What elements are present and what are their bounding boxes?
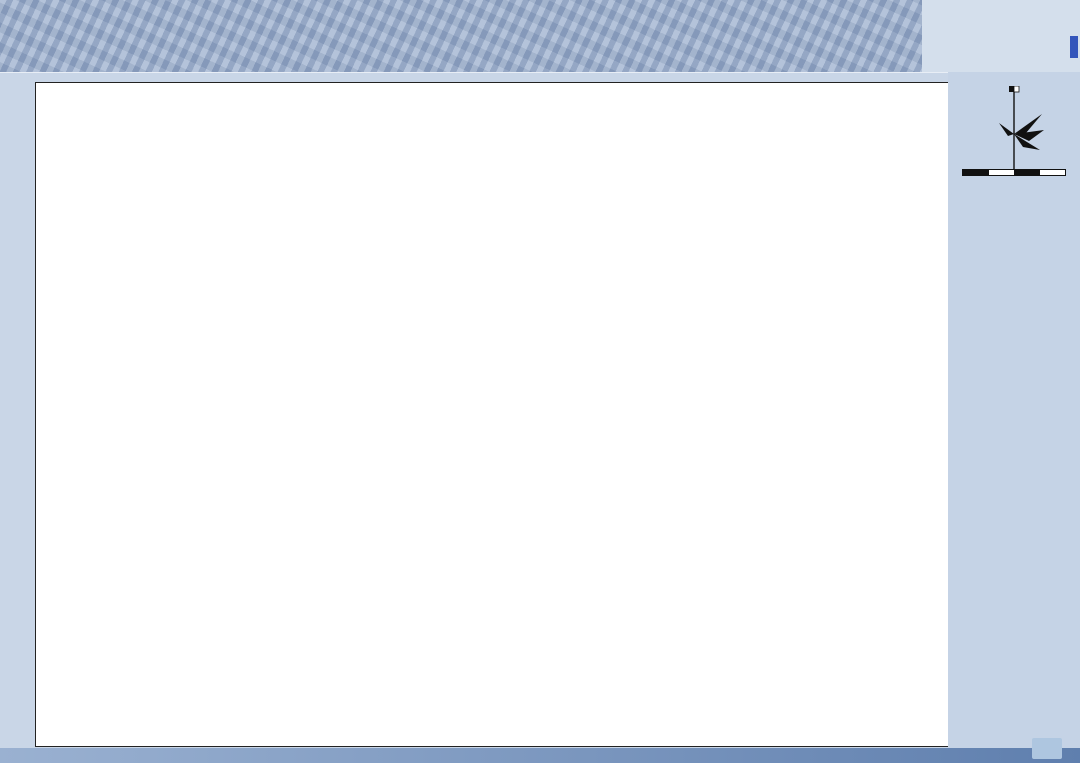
title-bar [0, 0, 1080, 73]
scale-strip [962, 169, 1066, 176]
page-number [1032, 738, 1062, 759]
corner-chip [1070, 36, 1078, 58]
scale-bar [962, 160, 1066, 186]
scale-bottom-labels [962, 177, 1066, 186]
bottom-band [0, 748, 1080, 763]
map-canvas [36, 83, 949, 746]
map-panel [35, 82, 950, 747]
title-bar-right-panel [922, 0, 1080, 72]
scale-top-labels [962, 160, 1066, 169]
legend-sidebar [948, 72, 1080, 748]
